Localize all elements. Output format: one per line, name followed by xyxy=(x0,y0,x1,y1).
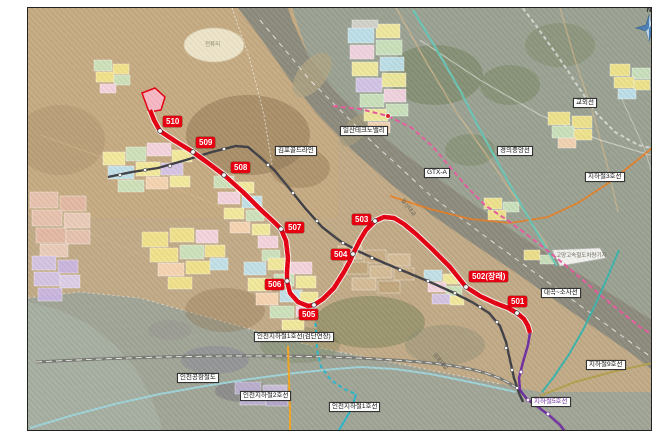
station-badge-506: 506 xyxy=(265,279,284,290)
line-label-incheon-line1-geomdan-ext: 인천지하철1호선(검단연장) xyxy=(254,332,334,342)
area-label-jeonnyuri: 전류리 xyxy=(205,42,220,48)
station-dot-502(장래) xyxy=(464,285,469,290)
station-badge-507: 507 xyxy=(285,222,304,233)
station-dot-510 xyxy=(158,129,163,134)
satellite-basemap: N xyxy=(27,7,652,431)
station-dot-503 xyxy=(373,219,378,224)
station-badge-503: 503 xyxy=(352,214,371,225)
reclaimed-land xyxy=(181,346,249,374)
area-label-goyang-depot: 고양고속철도차량기지 xyxy=(556,253,607,259)
station-dot-501 xyxy=(515,311,520,316)
station-badge-501: 501 xyxy=(508,296,527,307)
map-stage: N 김포골드라인일산테크노밸리교외선경의중앙선GTX-A지하철3호선대곡~소사선… xyxy=(27,7,652,431)
line-label-subway-line5: 지하철5호선 xyxy=(531,397,571,407)
line-label-gtx-a: GTX-A xyxy=(424,168,450,178)
station-badge-502(장래): 502(장래) xyxy=(469,271,508,282)
station-dot-505 xyxy=(312,303,317,308)
station-badge-505: 505 xyxy=(299,309,318,320)
map-frame: N 김포골드라인일산테크노밸리교외선경의중앙선GTX-A지하철3호선대곡~소사선… xyxy=(27,7,652,431)
map-screenshot: N 김포골드라인일산테크노밸리교외선경의중앙선GTX-A지하철3호선대곡~소사선… xyxy=(0,0,667,448)
station-badge-504: 504 xyxy=(331,249,350,260)
line-label-daegok-sosa-line: 대곡~소사선 xyxy=(541,288,581,298)
station-dot-507 xyxy=(279,227,284,232)
island xyxy=(148,320,192,340)
line-label-subway-line3: 지하철3호선 xyxy=(585,172,625,182)
station-dot-506 xyxy=(285,279,290,284)
line-label-ilsan-technovalley: 일산테크노밸리 xyxy=(340,126,388,136)
station-badge-508: 508 xyxy=(231,162,250,173)
line-label-gyeongui-jungang-line: 경의중앙선 xyxy=(497,146,533,156)
line-label-incheon-subway-line2: 인천지하철2호선 xyxy=(240,391,291,401)
line-label-subway-line9: 지하철9호선 xyxy=(586,360,626,370)
gtx-station-marker xyxy=(386,114,391,119)
line-label-gimpo-gold-line: 김포골드라인 xyxy=(275,146,317,156)
station-badge-510: 510 xyxy=(163,116,182,127)
station-badge-509: 509 xyxy=(196,137,215,148)
compass-n-label: N xyxy=(646,7,651,14)
station-dot-509 xyxy=(191,150,196,155)
station-dot-504 xyxy=(351,252,356,257)
line-label-gyooe-line: 교외선 xyxy=(573,98,597,108)
station-dot-508 xyxy=(222,173,227,178)
line-label-incheon-subway-line1: 인천지하철1호선 xyxy=(329,402,380,412)
line-label-incheon-airport-railroad: 인천공항철도 xyxy=(177,373,219,383)
